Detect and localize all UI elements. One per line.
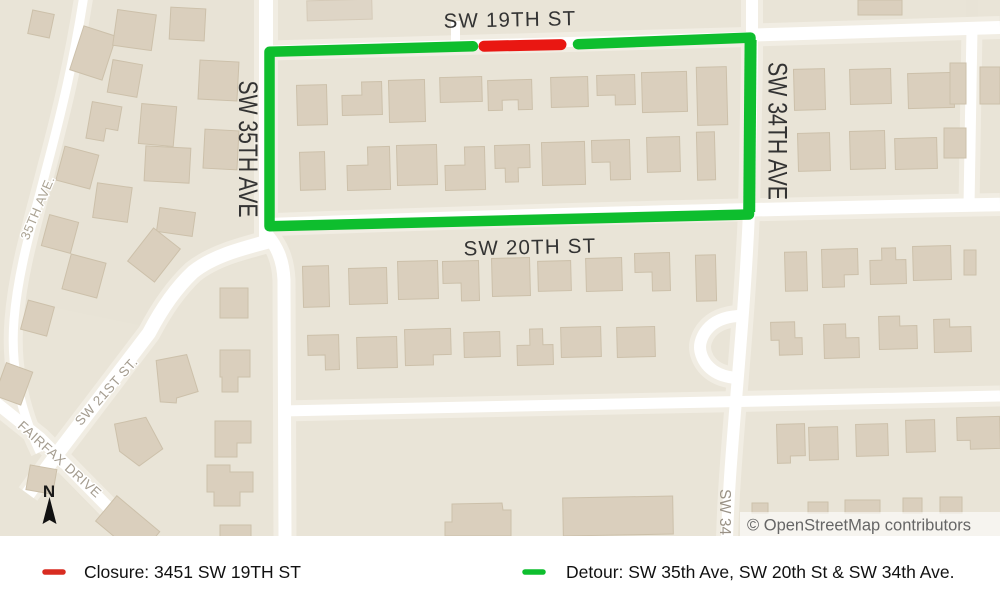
svg-text:© OpenStreetMap contributors: © OpenStreetMap contributors: [747, 517, 971, 535]
svg-text:SW 19TH ST: SW 19TH ST: [443, 7, 576, 33]
svg-text:SW 20TH ST: SW 20TH ST: [463, 234, 596, 260]
svg-text:SW 34: SW 34: [716, 489, 733, 535]
svg-text:SW 35TH AVE: SW 35TH AVE: [233, 81, 263, 218]
svg-text:Closure: 3451 SW 19TH ST: Closure: 3451 SW 19TH ST: [84, 562, 301, 582]
svg-text:SW 34TH AVE: SW 34TH AVE: [763, 62, 793, 200]
svg-text:N: N: [43, 482, 55, 501]
svg-text:Detour: SW 35th Ave, SW 20th S: Detour: SW 35th Ave, SW 20th St & SW 34t…: [566, 562, 954, 582]
